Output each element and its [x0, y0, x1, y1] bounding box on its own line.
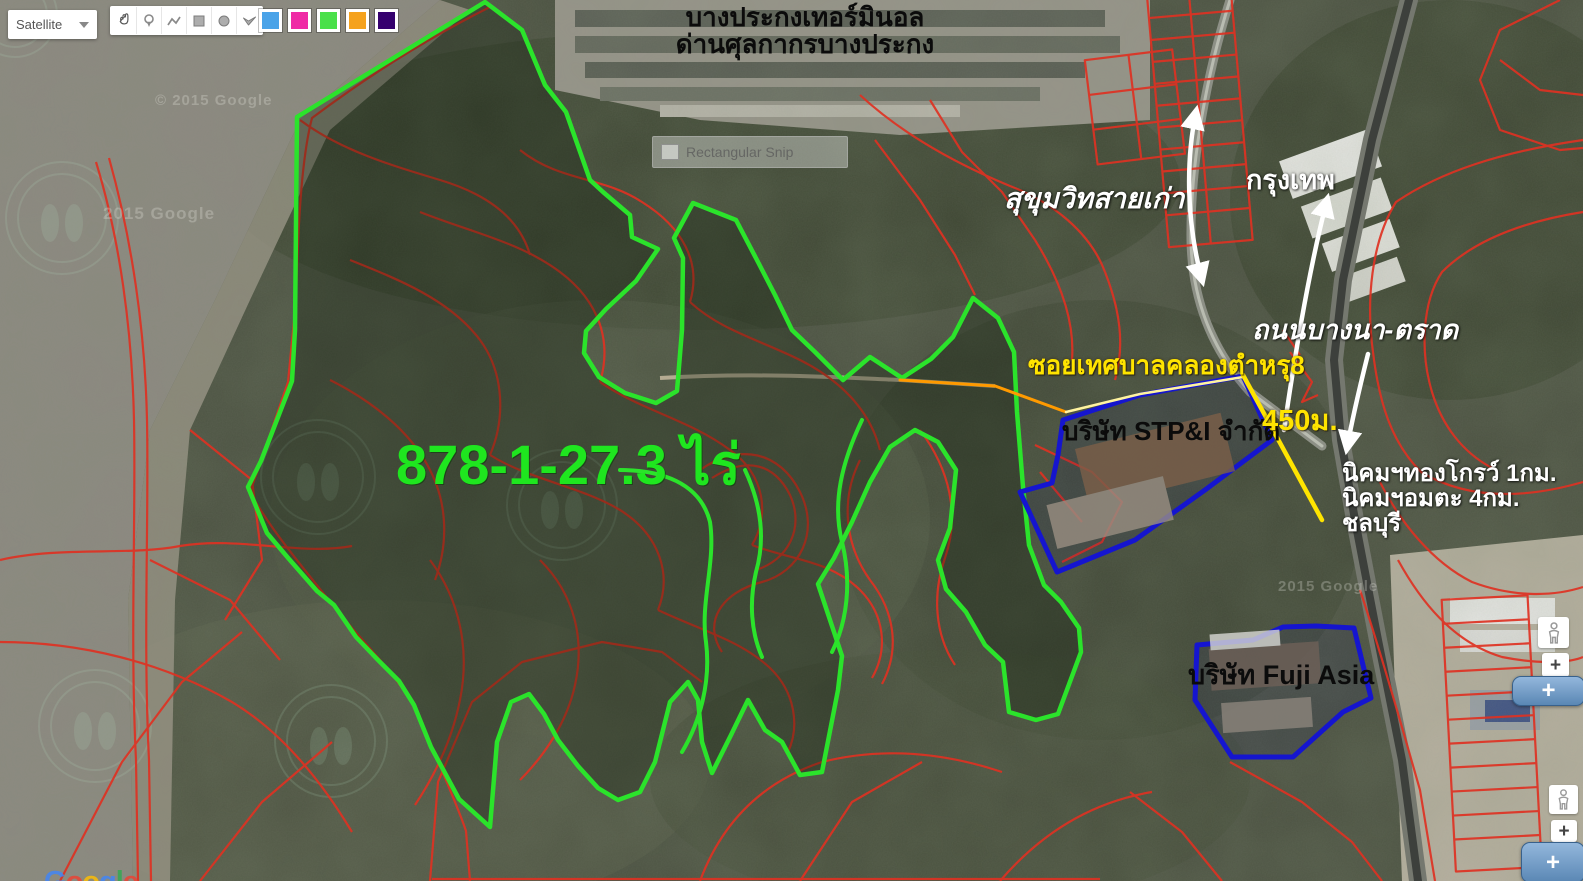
chonburi-label: ชลบุรี — [1342, 511, 1401, 536]
color-swatch-blue[interactable] — [259, 9, 282, 32]
chevron-down-icon — [79, 22, 89, 28]
snip-icon — [661, 144, 679, 160]
map-type-label: Satellite — [16, 17, 62, 32]
map-type-dropdown[interactable]: Satellite — [8, 10, 97, 39]
stp-company-label: บริษัท STP&I จำกัด — [1062, 418, 1280, 445]
terminal-label-line1: บางประกงเทอร์มินอล — [620, 4, 990, 31]
color-swatch-row — [259, 9, 398, 32]
pegman-icon — [1546, 622, 1562, 644]
terminal-label-line2: ด่านศุลกากรบางประกง — [620, 31, 990, 58]
industrial-estate-label-line1: นิคมฯทองโกรว์ 1กม. — [1342, 461, 1557, 486]
color-swatch-orange[interactable] — [346, 9, 369, 32]
bangna-trat-label: ถนนบางนา-ตราด — [1252, 316, 1458, 344]
satellite-map[interactable] — [0, 0, 1583, 881]
color-swatch-purple[interactable] — [375, 9, 398, 32]
distance-450m-label: 450ม. — [1262, 406, 1338, 436]
land-area-label: 878-1-27.3 ไร่ — [396, 436, 741, 495]
pegman-icon — [1556, 789, 1571, 810]
fuji-company-label: บริษัท Fuji Asia — [1188, 661, 1374, 689]
rectangular-snip-tooltip: Rectangular Snip — [652, 136, 848, 168]
rectangle-tool-icon[interactable] — [187, 7, 212, 34]
industrial-estate-label-line2: นิคมฯอมตะ 4กม. — [1342, 486, 1520, 511]
color-swatch-green[interactable] — [317, 9, 340, 32]
drawing-toolbar — [110, 6, 263, 35]
color-swatch-magenta[interactable] — [288, 9, 311, 32]
zoom-in-large-button[interactable]: + — [1521, 842, 1583, 881]
polygon-tool-icon[interactable] — [237, 7, 261, 34]
pegman-button[interactable] — [1549, 785, 1578, 814]
zoom-in-large-button[interactable]: + — [1512, 676, 1583, 706]
zoom-in-button[interactable]: + — [1542, 653, 1569, 677]
pan-tool-icon[interactable] — [112, 7, 137, 34]
zoom-in-button[interactable]: + — [1551, 820, 1577, 842]
map-canvas[interactable]: บางประกงเทอร์มินอล ด่านศุลกากรบางประกง ส… — [0, 0, 1583, 881]
marker-tool-icon[interactable] — [137, 7, 162, 34]
google-watermark: 2015 Google — [1278, 578, 1378, 595]
old-sukhumvit-label: สุขุมวิทสายเก่า — [1004, 184, 1184, 213]
google-watermark: © 2015 Google — [155, 92, 272, 109]
snip-label: Rectangular Snip — [686, 144, 793, 160]
soi-label: ซอยเทศบาลคลองตำหรุ8 — [1028, 352, 1305, 379]
bangkok-label: กรุงเทพ — [1246, 166, 1335, 194]
google-logo: Google — [44, 866, 138, 881]
polyline-tool-icon[interactable] — [162, 7, 187, 34]
pegman-button[interactable] — [1538, 617, 1569, 648]
google-watermark: 2015 Google — [103, 204, 215, 224]
circle-tool-icon[interactable] — [212, 7, 237, 34]
